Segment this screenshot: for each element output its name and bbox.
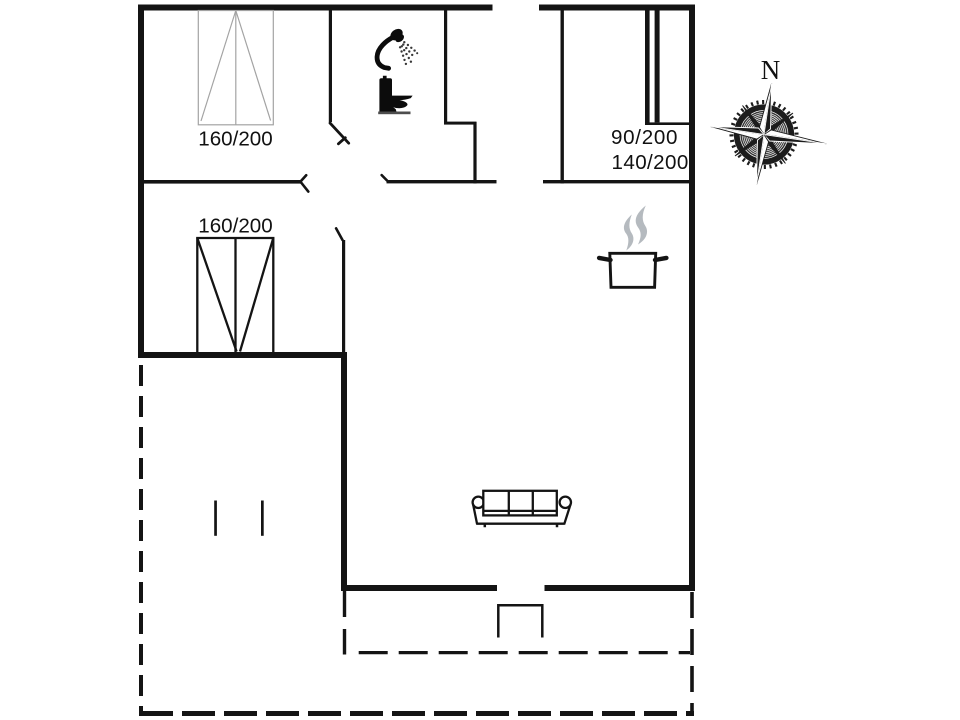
svg-text:90/200: 90/200 (611, 126, 678, 149)
svg-text:140/200: 140/200 (612, 151, 689, 174)
svg-text:160/200: 160/200 (198, 214, 272, 237)
svg-text:160/200: 160/200 (198, 128, 272, 151)
svg-text:N: N (761, 55, 781, 85)
